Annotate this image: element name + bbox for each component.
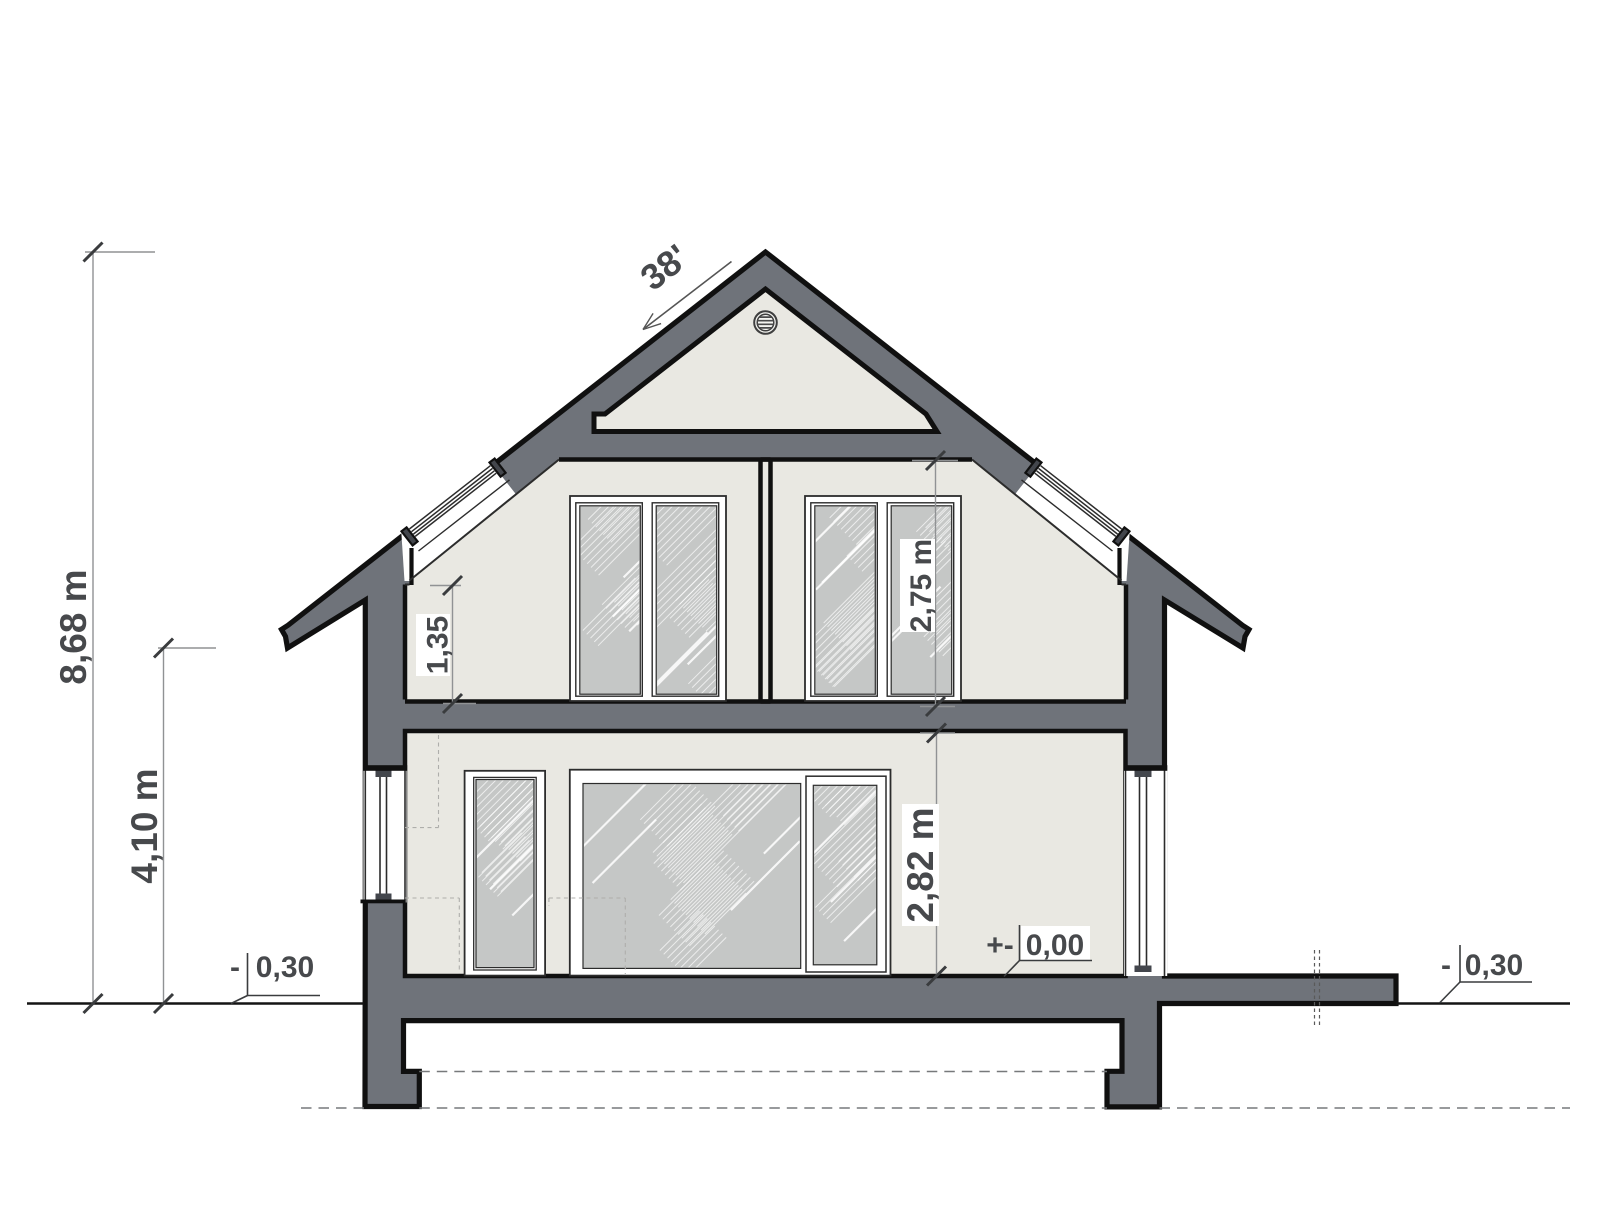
svg-text:0,00: 0,00: [1026, 929, 1084, 962]
svg-text:2,75 m: 2,75 m: [905, 539, 938, 632]
svg-text:4,10 m: 4,10 m: [124, 768, 165, 883]
svg-text:-: -: [230, 951, 240, 984]
svg-text:0,30: 0,30: [1465, 949, 1523, 982]
svg-text:0,30: 0,30: [256, 951, 314, 984]
svg-text:1,35: 1,35: [422, 616, 455, 674]
svg-text:+-: +-: [986, 929, 1014, 962]
svg-text:8,68 m: 8,68 m: [53, 569, 94, 684]
svg-text:-: -: [1441, 949, 1451, 982]
svg-text:2,82 m: 2,82 m: [900, 807, 941, 922]
